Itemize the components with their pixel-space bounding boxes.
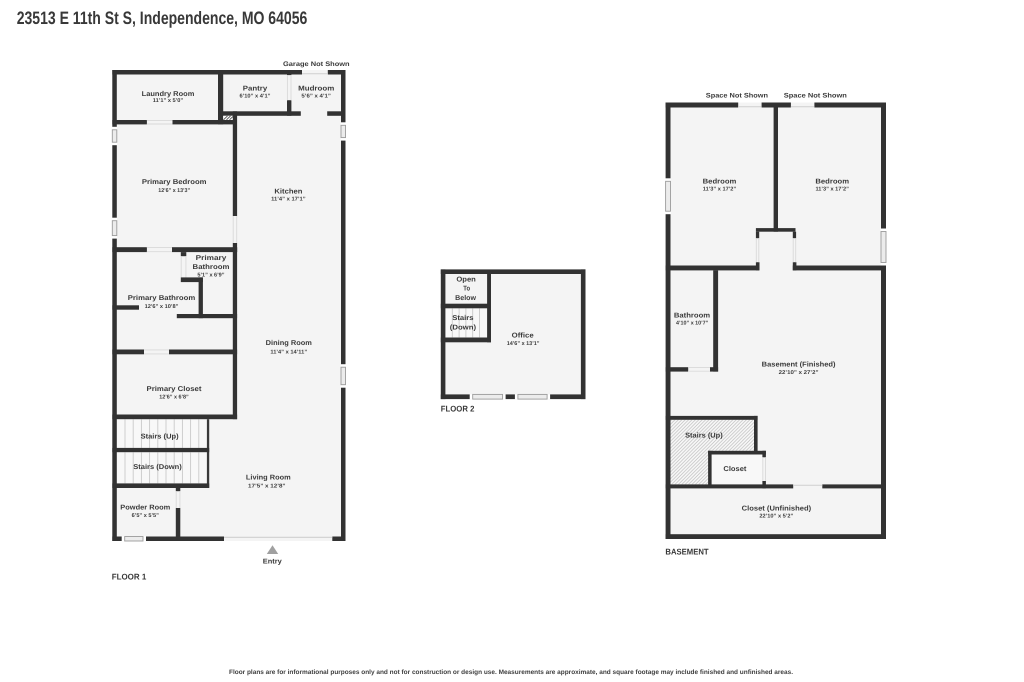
svg-text:Space Not Shown: Space Not Shown [706, 93, 768, 100]
svg-text:12’6” x 10’8”: 12’6” x 10’8” [145, 304, 179, 310]
svg-text:Bathroom: Bathroom [674, 312, 710, 320]
svg-text:Kitchen: Kitchen [274, 187, 302, 195]
svg-text:Stairs: Stairs [452, 314, 473, 322]
svg-text:11’4” x 17’1”: 11’4” x 17’1” [271, 197, 306, 203]
svg-text:Dining Room: Dining Room [266, 339, 312, 347]
svg-text:Closet: Closet [723, 465, 747, 473]
svg-text:Bedroom: Bedroom [703, 177, 737, 185]
svg-text:22’10” x 5’2”: 22’10” x 5’2” [759, 513, 793, 519]
svg-text:Mudroom: Mudroom [298, 85, 334, 93]
svg-text:Primary Bathroom: Primary Bathroom [128, 294, 196, 302]
svg-text:Below: Below [455, 294, 476, 302]
svg-text:Space Not Shown: Space Not Shown [784, 93, 847, 100]
svg-text:17’5” x 12’8”: 17’5” x 12’8” [248, 484, 286, 490]
svg-text:Bedroom: Bedroom [815, 177, 849, 185]
svg-text:Primary Closet: Primary Closet [147, 385, 203, 393]
svg-text:Garage Not Shown: Garage Not Shown [283, 61, 350, 68]
svg-text:FLOOR 2: FLOOR 2 [441, 404, 475, 414]
svg-text:23513 E 11th St S, Independenc: 23513 E 11th St S, Independence, MO 6405… [17, 8, 308, 28]
svg-text:To: To [463, 286, 470, 293]
svg-text:4’10” x 10’7”: 4’10” x 10’7” [676, 321, 709, 327]
svg-text:11’1” x 5’0”: 11’1” x 5’0” [153, 98, 184, 104]
svg-text:Stairs (Up): Stairs (Up) [685, 432, 723, 440]
svg-text:Primary: Primary [196, 254, 227, 262]
svg-text:Stairs (Down): Stairs (Down) [133, 463, 182, 471]
svg-text:12’6” x 6’8”: 12’6” x 6’8” [159, 394, 189, 400]
svg-text:Basement (Finished): Basement (Finished) [762, 360, 836, 368]
svg-text:Powder Room: Powder Room [120, 503, 170, 511]
svg-text:(Down): (Down) [450, 323, 476, 331]
svg-text:12’6” x 13’3”: 12’6” x 13’3” [158, 188, 190, 194]
svg-text:6’5” x 5’5”: 6’5” x 5’5” [132, 513, 159, 519]
svg-text:Pantry: Pantry [243, 86, 268, 93]
svg-text:Laundry Room: Laundry Room [142, 90, 195, 98]
svg-text:Living Room: Living Room [246, 474, 291, 482]
svg-text:5’1” x 6’9”: 5’1” x 6’9” [197, 272, 224, 278]
svg-text:11’3” x 17’2”: 11’3” x 17’2” [703, 187, 737, 193]
svg-text:Open: Open [456, 277, 476, 284]
svg-text:Entry: Entry [263, 559, 282, 566]
svg-text:Floor plans are for informatio: Floor plans are for informational purpos… [229, 669, 793, 676]
svg-text:Closet (Unfinished): Closet (Unfinished) [742, 505, 812, 513]
svg-text:Office: Office [512, 332, 534, 340]
svg-text:14’6” x 13’1”: 14’6” x 13’1” [507, 341, 540, 347]
svg-text:BASEMENT: BASEMENT [665, 547, 708, 557]
svg-text:6’10” x 4’1”: 6’10” x 4’1” [240, 94, 271, 100]
svg-text:11’4” x 14’11”: 11’4” x 14’11” [270, 350, 307, 356]
svg-text:11’3” x 17’2”: 11’3” x 17’2” [816, 187, 850, 193]
svg-text:Stairs (Up): Stairs (Up) [141, 432, 179, 440]
svg-text:Primary Bedroom: Primary Bedroom [142, 178, 207, 186]
svg-text:22’10” x 27’2”: 22’10” x 27’2” [779, 370, 819, 376]
svg-text:FLOOR 1: FLOOR 1 [112, 572, 147, 582]
svg-text:Bathroom: Bathroom [193, 263, 230, 271]
svg-text:5’6” x 4’1”: 5’6” x 4’1” [301, 94, 331, 100]
